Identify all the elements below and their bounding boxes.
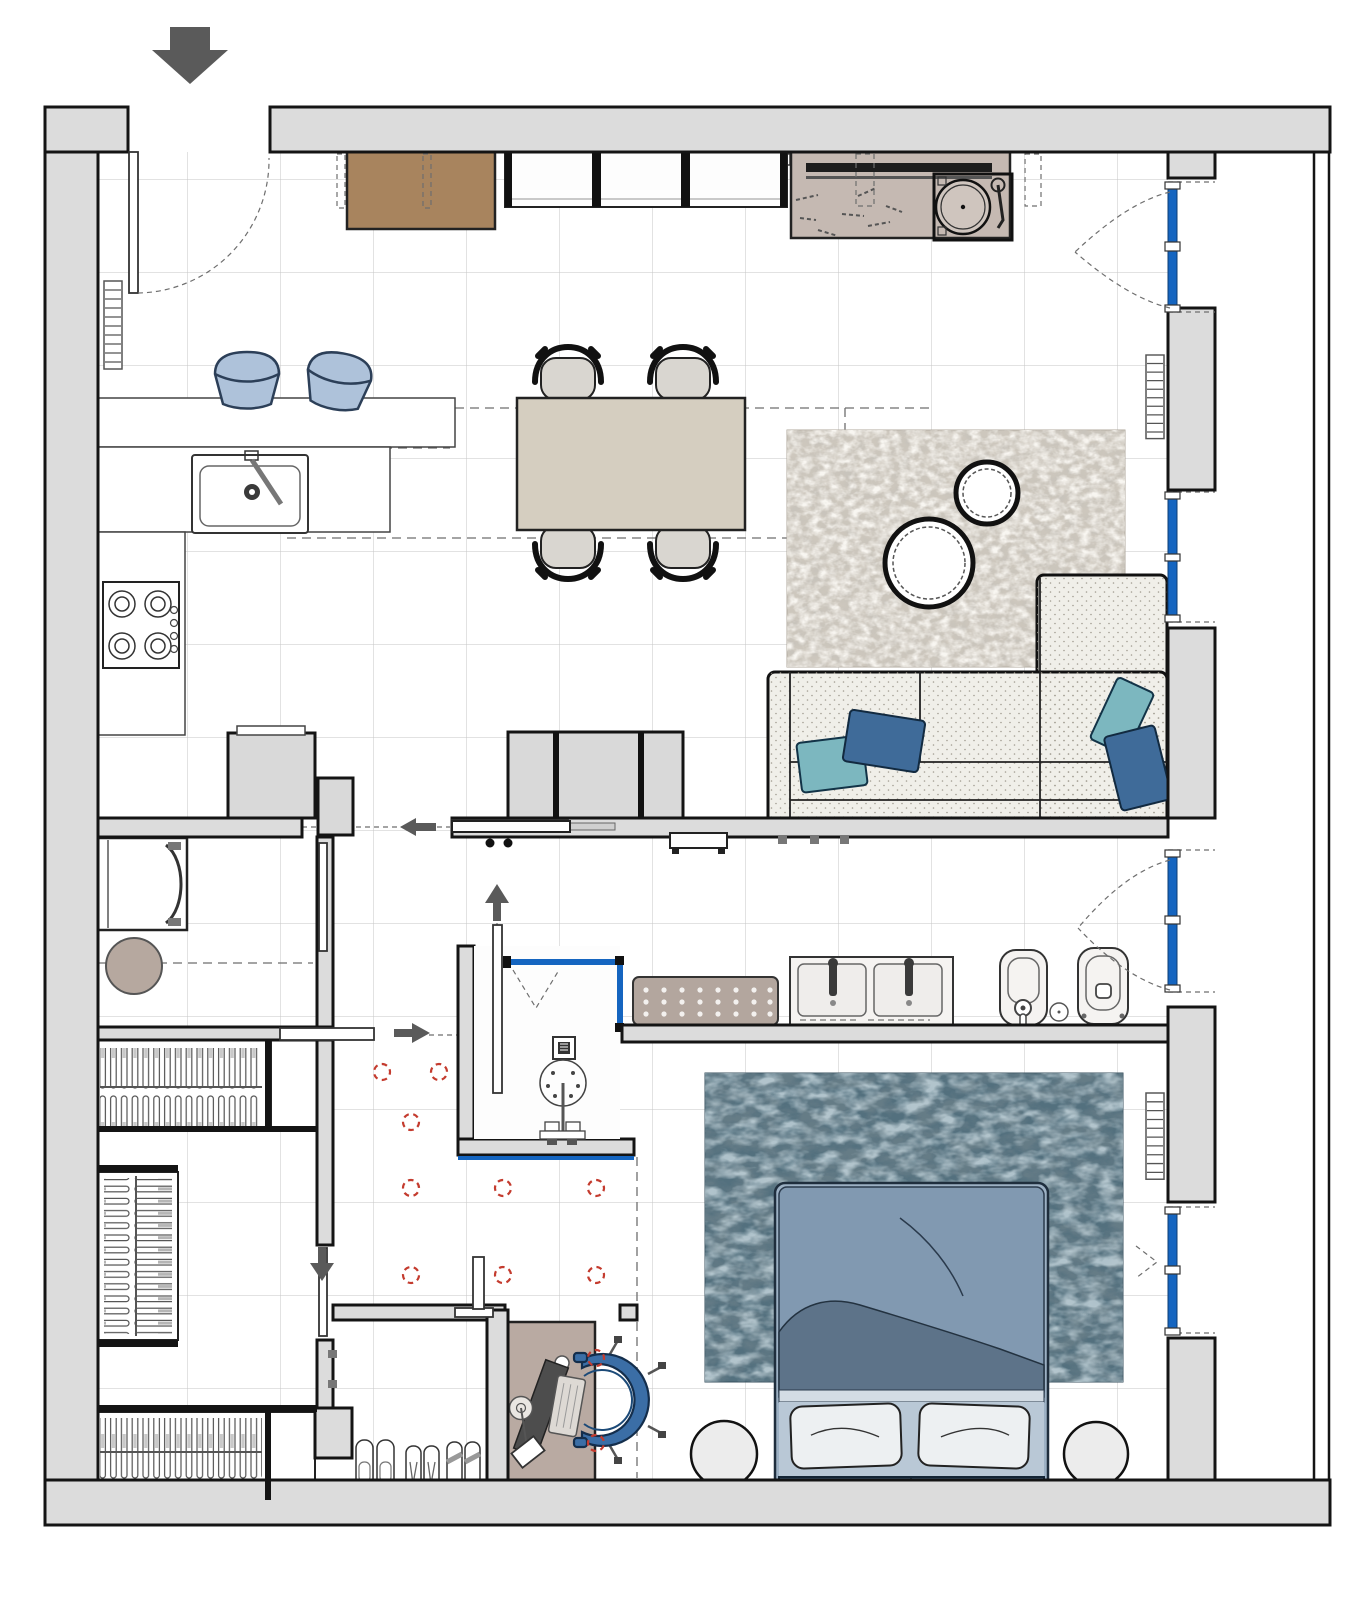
double-vanity: Double washbasin vanity (790, 957, 953, 1025)
bedside-table: Round bedside table (691, 1421, 757, 1487)
media-sideboard: Media sideboard with turntable (791, 152, 1012, 240)
entry-door-leaf (129, 152, 138, 293)
balcony-door-bath (1168, 856, 1177, 916)
washing-machine-icon: Washing machine (97, 838, 187, 930)
sliding-door-closet-hall (280, 1028, 374, 1040)
bed-pillow (918, 1403, 1030, 1469)
toilet-icon: Toilet (1078, 948, 1128, 1024)
coffee-table (885, 519, 973, 607)
laundry-basket-icon: Laundry basket (106, 938, 162, 994)
floor-plan-page: Kitchen counter with sink and gas hob (0, 0, 1361, 1600)
wall-cabinets: Wall cabinet row (505, 152, 787, 207)
wardrobe-hangers (104, 1178, 172, 1334)
bedside-table: Round bedside table (1064, 1422, 1128, 1486)
entry-console: Entry console (347, 152, 495, 229)
entry-arrow-icon (152, 27, 228, 84)
window-bedroom (1168, 1213, 1177, 1267)
coffee-table (956, 462, 1018, 524)
gas-hob-icon (103, 582, 179, 668)
bed-pillow (790, 1403, 902, 1469)
dining-table (517, 398, 745, 530)
wall-tv (452, 821, 570, 832)
tv-unit: TV storage unit (508, 732, 683, 818)
bath-bench: Upholstered bench (633, 977, 778, 1025)
radiator-icon (1146, 355, 1164, 439)
window-living-top (1168, 188, 1177, 242)
sliding-door-study (473, 1257, 484, 1309)
bidet-icon: Bidet (1000, 950, 1047, 1028)
cushion-blue (842, 709, 925, 772)
sliding-door-laundry (319, 843, 327, 951)
window-living-mid (1168, 498, 1177, 554)
kitchen-sink-icon (192, 451, 308, 533)
shower: Walk-in shower with glass screen (458, 946, 634, 1158)
sliding-door-bathroom (493, 925, 502, 1093)
bar-stool-icon (215, 352, 279, 409)
radiator-icon (104, 281, 122, 369)
living-area: Living room rug with round cutout tables… (768, 430, 1172, 830)
radiator-icon (1146, 1093, 1164, 1179)
floor-plan-drawing: Kitchen counter with sink and gas hob (0, 0, 1361, 1600)
bed: Double bed with duvet and pillows (775, 1183, 1048, 1495)
